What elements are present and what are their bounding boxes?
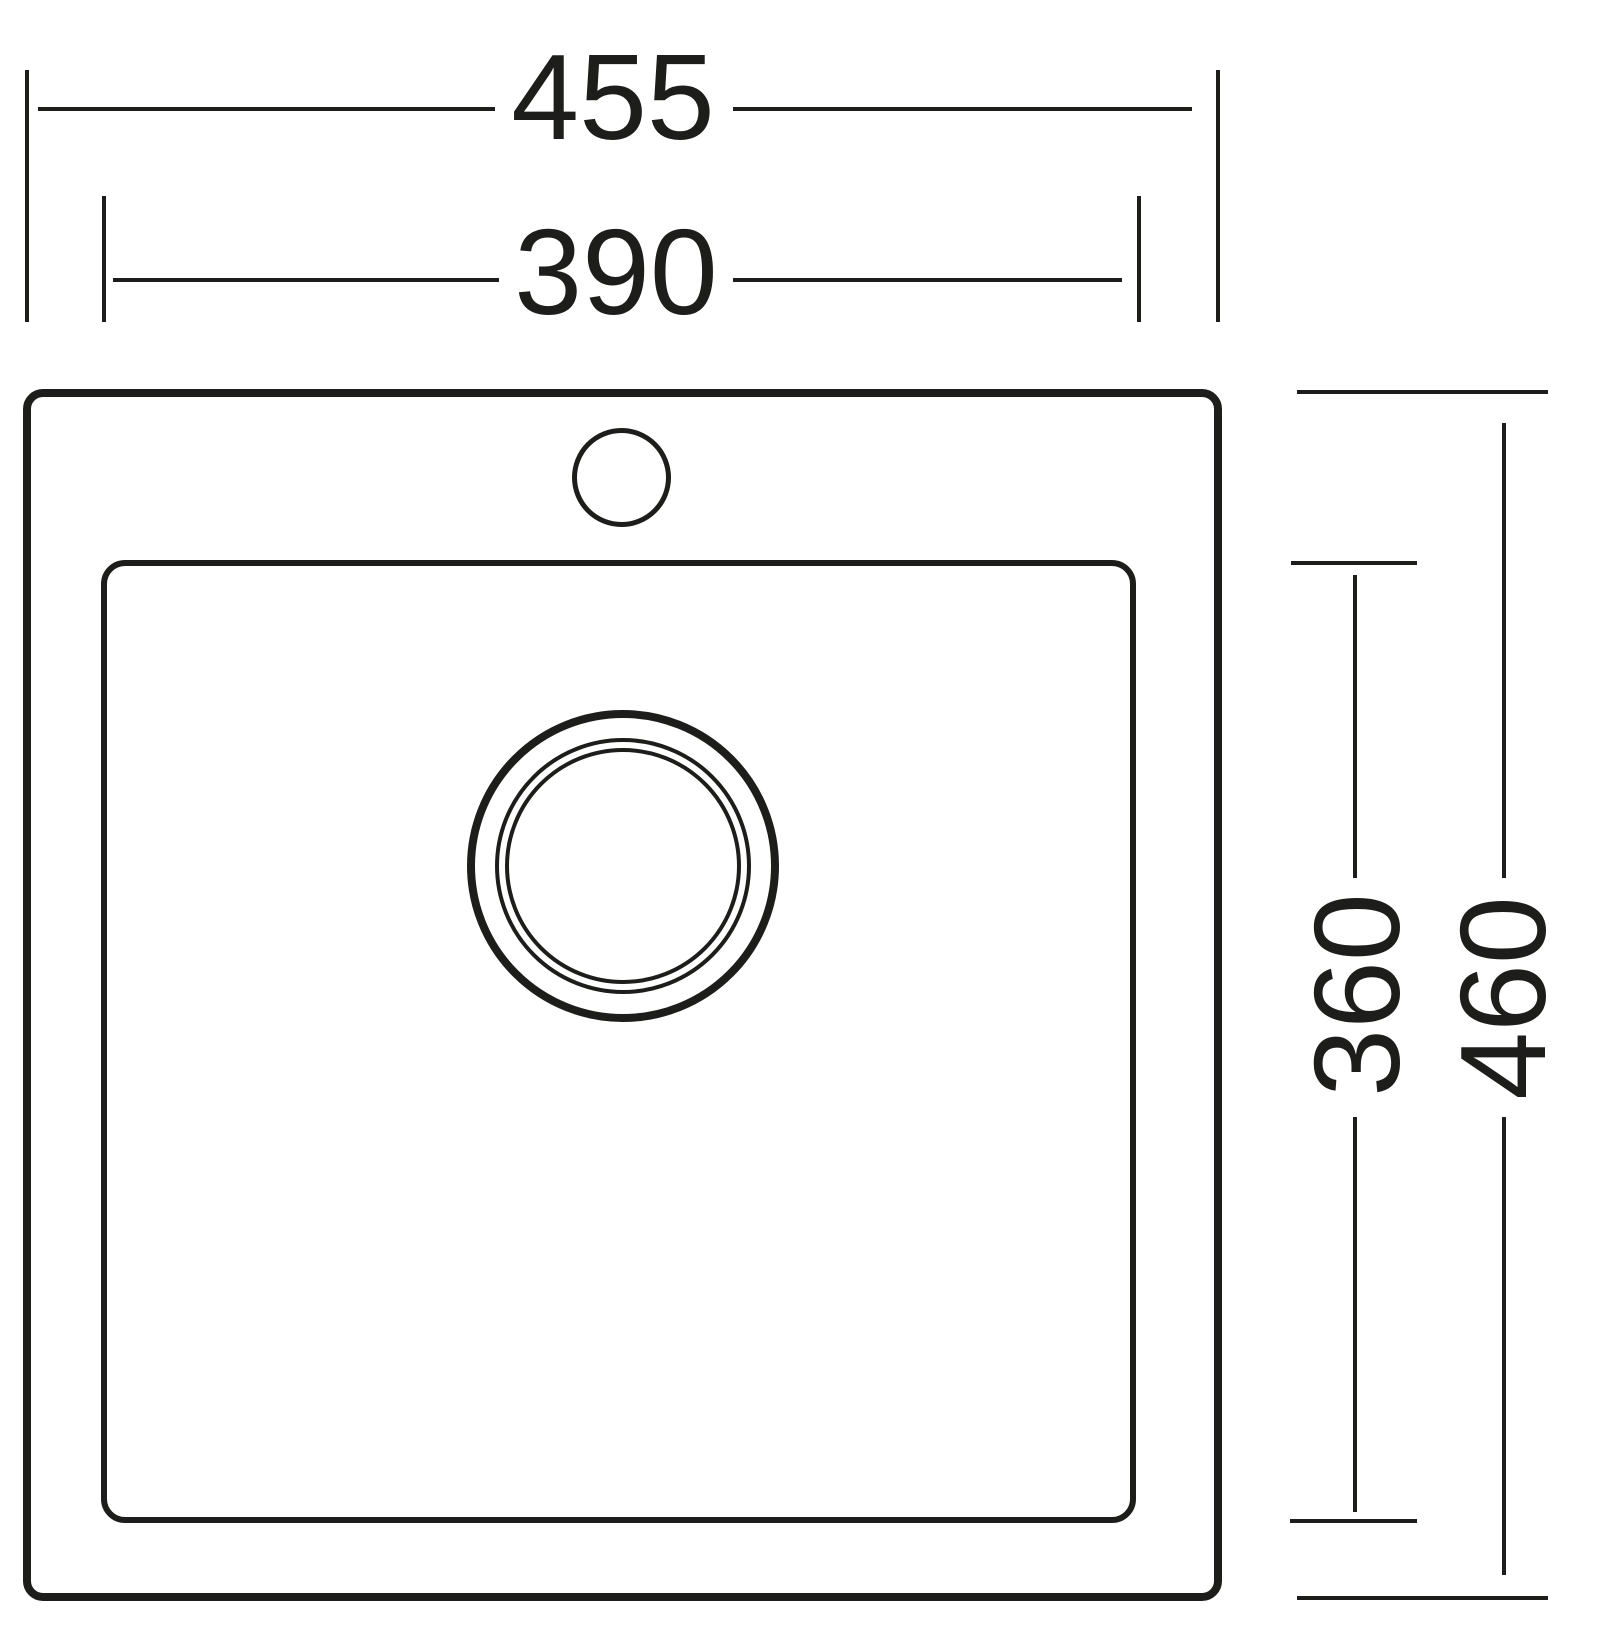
extension-line-overall-depth-bottom [1297,1596,1548,1600]
faucet-hole [572,428,671,527]
extension-line-overall-width-right [1216,70,1220,322]
dimension-line-overall-width-right-segment [733,107,1192,111]
dim-label-overall-width: 455 [511,36,715,158]
dimension-line-bowl-width-right-segment [733,278,1122,282]
dim-label-overall-depth: 460 [1442,896,1564,1100]
drain-inner-circle [505,748,741,984]
extension-line-bowl-depth-bottom [1290,1519,1417,1523]
dimension-line-bowl-depth-top-segment [1353,575,1357,878]
extension-line-bowl-depth-top [1291,561,1417,565]
dim-label-bowl-width: 390 [514,211,718,333]
extension-line-overall-depth-top [1297,390,1548,394]
extension-line-overall-width-left [25,70,29,322]
dimension-line-bowl-width-left-segment [113,278,499,282]
dimension-line-overall-depth-bottom-segment [1502,1117,1506,1575]
sink-technical-drawing: 455 390 360 460 [0,0,1600,1626]
bowl-outline [101,560,1136,1523]
dimension-line-overall-width-left-segment [38,107,495,111]
extension-line-bowl-width-right [1137,196,1141,322]
extension-line-bowl-width-left [102,196,106,322]
dimension-line-overall-depth-top-segment [1502,423,1506,878]
dimension-line-bowl-depth-bottom-segment [1353,1117,1357,1512]
dim-label-bowl-depth: 360 [1296,893,1418,1097]
